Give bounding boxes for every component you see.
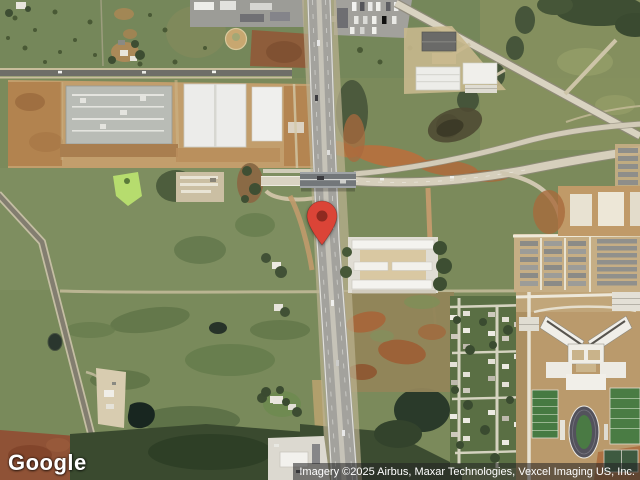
apartment-complex: [340, 237, 452, 294]
north-road: [0, 68, 292, 79]
imagery-attribution: Imagery ©2025 Airbus, Maxar Technologies…: [293, 463, 640, 480]
google-logo[interactable]: Google: [8, 450, 87, 476]
map-pin-icon[interactable]: [304, 200, 340, 246]
construction-site-northwest: [8, 80, 316, 168]
pin-body: [307, 201, 337, 245]
pin-inner-dot: [317, 211, 328, 222]
map-viewport[interactable]: Google Imagery ©2025 Airbus, Maxar Techn…: [0, 0, 640, 480]
